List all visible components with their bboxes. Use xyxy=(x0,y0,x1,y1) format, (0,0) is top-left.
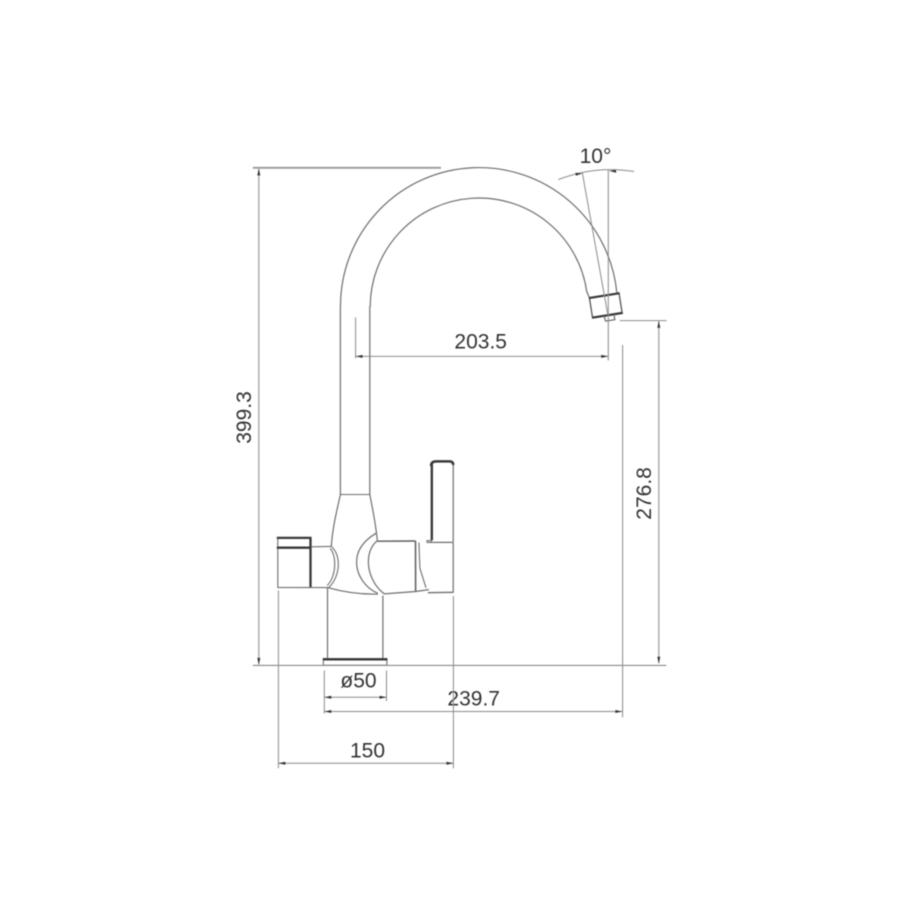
svg-text:10°: 10° xyxy=(580,145,612,168)
svg-text:150: 150 xyxy=(350,739,385,762)
svg-text:239.7: 239.7 xyxy=(447,688,500,711)
svg-text:276.8: 276.8 xyxy=(633,467,656,520)
svg-text:203.5: 203.5 xyxy=(454,331,507,354)
svg-text:ø50: ø50 xyxy=(340,670,376,693)
svg-text:399.3: 399.3 xyxy=(233,391,256,444)
